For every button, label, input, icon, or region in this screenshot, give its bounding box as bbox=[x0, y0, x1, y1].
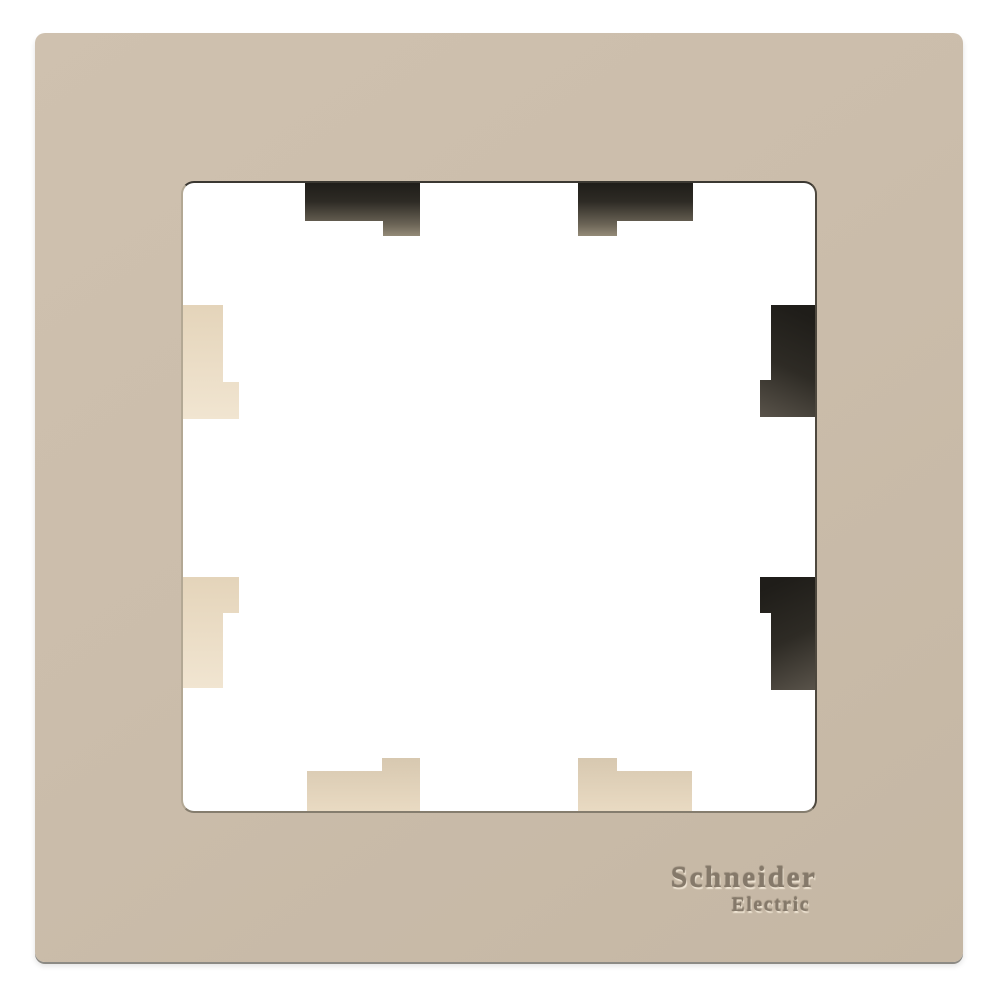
brand-logo-name: Schneider bbox=[671, 863, 817, 893]
mounting-tab-right-upper bbox=[760, 305, 815, 417]
brand-logo-subname: Electric bbox=[671, 895, 810, 915]
mounting-tab-bottom-right bbox=[578, 758, 692, 811]
mounting-tab-bottom-left bbox=[307, 758, 420, 811]
mounting-tab-right-lower bbox=[760, 577, 815, 690]
mounting-tab-top-left bbox=[305, 183, 420, 236]
product-photo: Schneider Electric bbox=[0, 0, 1000, 1000]
mounting-tab-left-lower bbox=[183, 577, 239, 688]
mounting-tab-left-upper bbox=[183, 305, 239, 419]
wall-plate-frame: Schneider Electric bbox=[35, 33, 963, 962]
brand-logo: Schneider Electric bbox=[671, 863, 817, 915]
frame-opening bbox=[181, 181, 817, 813]
mounting-tab-top-right bbox=[578, 183, 693, 236]
